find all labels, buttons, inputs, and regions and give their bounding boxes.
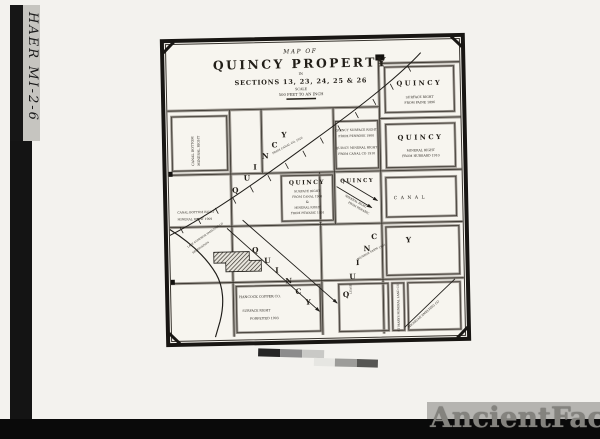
parcel-east-title: QUINCY — [397, 133, 443, 142]
smelting-diag-label: MICHIGAN SMELTING CO — [407, 299, 441, 329]
sw-3: FORFEITED 1903 — [250, 316, 279, 321]
center-right-title: QUINCY — [340, 178, 374, 185]
quincy-b-u: U — [264, 256, 271, 265]
quincy-c-q: Q — [343, 290, 350, 299]
quincy-a-i: I — [253, 163, 257, 172]
map-frame: MAP OF QUINCY PROPERTY IN SECTIONS 13, 2… — [160, 33, 471, 347]
center-3: & — [306, 200, 309, 204]
map-title-kicker: MAP OF — [282, 49, 317, 56]
center-5: FROM PEWABIC 1901 — [291, 210, 325, 215]
quincy-a-u: U — [244, 174, 251, 183]
east-notes-2: FROM PENROSE 1900 — [338, 133, 374, 138]
map-canvas: MAP OF QUINCY PROPERTY IN SECTIONS 13, 2… — [166, 39, 465, 341]
canal-label: CANAL — [394, 194, 428, 201]
parcel-label-east: QUINCY MINERAL RIGHT FROM HUBBARD 1910 — [397, 133, 443, 158]
west-2: MINERAL RIGHT 1909 — [177, 217, 212, 222]
center-4: MINERAL RIGHT — [294, 205, 320, 210]
map-title-sections: SECTIONS 13, 23, 24, 25 & 26 — [235, 76, 368, 87]
parcel-ne-title: QUINCY — [396, 79, 442, 88]
east-notes-1: QUINCY SURFACE RIGHT — [335, 127, 376, 132]
grayscale-bar-row2 — [314, 358, 378, 368]
west-vert-1: CANAL BOTTOM — [190, 136, 195, 166]
archival-strip-top — [10, 5, 23, 141]
grayscale-swatch — [280, 349, 302, 358]
map-scale-label: SCALE — [295, 87, 308, 91]
map-title: QUINCY PROPERTY — [213, 54, 389, 73]
quincy-diagonal-a: Q U I N C Y — [231, 130, 289, 194]
map-title-in: IN — [299, 72, 303, 76]
parcel-label-west: CANAL BOTTOM RIGHT MINERAL RIGHT 1909 — [177, 210, 214, 222]
quincy-b-i: I — [275, 266, 279, 275]
quincy-c-u: U — [349, 272, 356, 281]
parcel-east-sub2: FROM HUBBARD 1910 — [402, 153, 440, 158]
sw-2: SURFACE RIGHT — [242, 308, 271, 313]
parcel-label-ne: QUINCY SURFACE RIGHT FROM PAINE 1896 — [396, 79, 442, 105]
parcel-label-center: QUINCY SURFACE RIGHT FROM CANAL 1900 & M… — [289, 179, 326, 215]
quincy-c-c: C — [371, 232, 377, 241]
map-scale-value: 500 FEET TO AN INCH — [279, 92, 325, 97]
quincy-c-n: N — [364, 244, 371, 253]
parcel-east-sub1: MINERAL RIGHT — [407, 148, 436, 153]
sw-1: HANCOCK COPPER CO. — [239, 294, 281, 299]
quincy-b-n: N — [285, 276, 292, 285]
east-notes-4: FROM CANAL CO 1910 — [338, 151, 375, 156]
st-marys-label: ST MARYS MINERAL LAND CO — [396, 283, 401, 331]
center-1: SURFACE RIGHT — [294, 189, 320, 194]
grayscale-swatch — [302, 350, 324, 359]
grayscale-bar — [258, 348, 378, 368]
center-title: QUINCY — [289, 179, 325, 187]
grayscale-swatch — [335, 358, 357, 367]
grayscale-swatch — [258, 348, 280, 357]
quincy-a-q: Q — [232, 186, 239, 195]
quincy-a-n: N — [262, 151, 269, 160]
quincy-a-y: Y — [280, 130, 287, 139]
west-vert-2: MINERAL RIGHT — [196, 135, 201, 166]
quincy-a-c: C — [272, 140, 278, 149]
grayscale-swatch — [314, 358, 336, 367]
archival-id: HAER MI-2-6 — [24, 12, 40, 138]
parcel-label-sw: HANCOCK COPPER CO. SURFACE RIGHT FORFEIT… — [239, 294, 281, 321]
parcel-ne-sub1: SURFACE RIGHT — [406, 95, 435, 100]
parcel-ne-sub2: FROM PAINE 1896 — [404, 100, 435, 105]
quincy-c-y: Y — [405, 235, 412, 244]
parcel-label-east-notes: QUINCY SURFACE RIGHT FROM PENROSE 1900 Q… — [335, 127, 377, 156]
quincy-b-c: C — [295, 287, 301, 296]
quincy-b-y: Y — [304, 298, 311, 307]
map-title-block: MAP OF QUINCY PROPERTY IN SECTIONS 13, 2… — [213, 47, 389, 101]
parcel-label-west-vertical: CANAL BOTTOM MINERAL RIGHT — [190, 135, 201, 166]
grayscale-swatch — [356, 359, 378, 368]
archival-strip-bottom — [10, 141, 32, 423]
scale-rule — [286, 98, 316, 100]
quincy-b-q: Q — [252, 245, 259, 254]
watermark-text: AncientFaces — [430, 401, 600, 434]
parcel-label-center-right: QUINCY MINERAL RIGHT FROM PEWABIC — [340, 178, 375, 216]
center-2: FROM CANAL 1900 — [292, 194, 322, 199]
west-1: CANAL BOTTOM RIGHT — [177, 210, 214, 215]
east-notes-3: QUINCY MINERAL RIGHT — [336, 145, 378, 150]
